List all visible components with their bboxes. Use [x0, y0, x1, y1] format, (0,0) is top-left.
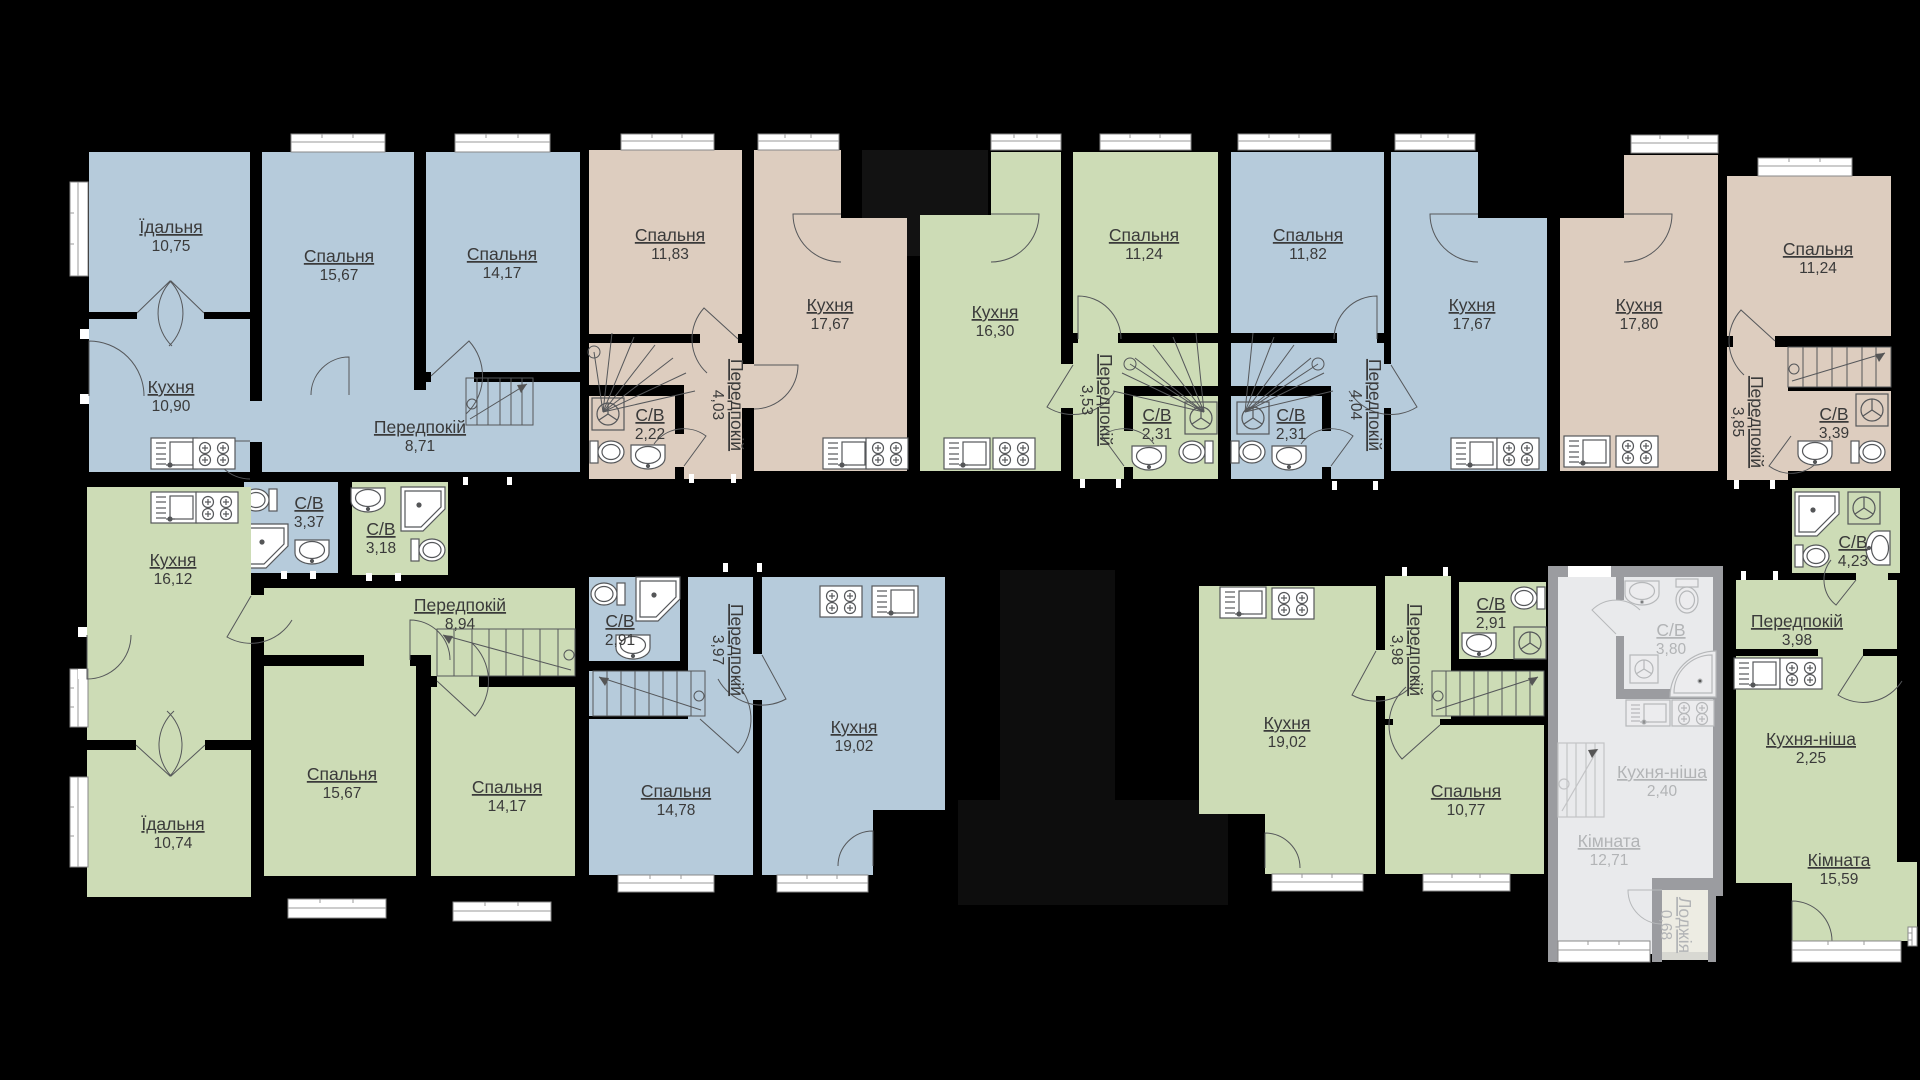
- svg-text:Спальня: Спальня: [1431, 781, 1501, 801]
- svg-text:Спальня: Спальня: [635, 225, 705, 245]
- svg-text:3,85: 3,85: [1729, 407, 1746, 437]
- svg-text:10,75: 10,75: [152, 238, 191, 255]
- svg-text:Передпокій: Передпокій: [414, 595, 506, 615]
- svg-text:14,17: 14,17: [483, 265, 522, 282]
- svg-text:Кухня: Кухня: [150, 550, 197, 570]
- svg-text:Спальня: Спальня: [307, 764, 377, 784]
- svg-text:Кімната: Кімната: [1578, 831, 1641, 851]
- svg-text:19,02: 19,02: [1268, 734, 1307, 751]
- svg-text:2,22: 2,22: [635, 426, 665, 443]
- svg-text:С/В: С/В: [294, 493, 323, 513]
- svg-text:8,71: 8,71: [405, 438, 435, 455]
- svg-text:10,90: 10,90: [152, 398, 191, 415]
- svg-text:16,12: 16,12: [154, 571, 193, 588]
- svg-text:Передпокій: Передпокій: [1365, 359, 1385, 451]
- svg-text:17,80: 17,80: [1620, 316, 1659, 333]
- svg-text:4,03: 4,03: [709, 390, 726, 420]
- svg-text:2,31: 2,31: [1142, 426, 1172, 443]
- svg-text:17,67: 17,67: [811, 316, 850, 333]
- svg-text:4,23: 4,23: [1838, 553, 1868, 570]
- svg-text:2,25: 2,25: [1796, 750, 1826, 767]
- svg-text:Їдальня: Їдальня: [139, 217, 202, 237]
- svg-text:Кухня-ніша: Кухня-ніша: [1766, 729, 1856, 749]
- svg-text:Передпокій: Передпокій: [1747, 376, 1767, 468]
- svg-text:0,68: 0,68: [1657, 910, 1674, 940]
- svg-text:С/В: С/В: [366, 519, 395, 539]
- svg-text:15,67: 15,67: [320, 267, 359, 284]
- svg-text:Спальня: Спальня: [304, 246, 374, 266]
- svg-text:11,24: 11,24: [1125, 246, 1163, 263]
- svg-text:Передпокій: Передпокій: [727, 604, 747, 696]
- svg-text:3,97: 3,97: [709, 635, 726, 665]
- svg-text:Передпокій: Передпокій: [1406, 604, 1426, 696]
- svg-text:С/В: С/В: [1656, 620, 1685, 640]
- svg-text:2,91: 2,91: [605, 632, 635, 649]
- svg-text:Спальня: Спальня: [641, 781, 711, 801]
- svg-text:14,17: 14,17: [488, 798, 527, 815]
- svg-text:Кухня: Кухня: [831, 717, 878, 737]
- svg-text:3,18: 3,18: [366, 540, 396, 557]
- svg-text:С/В: С/В: [1819, 404, 1848, 424]
- svg-text:С/В: С/В: [1276, 405, 1305, 425]
- svg-text:14,78: 14,78: [657, 802, 696, 819]
- svg-text:Кухня: Кухня: [1616, 295, 1663, 315]
- svg-text:Кухня: Кухня: [807, 295, 854, 315]
- svg-text:3,98: 3,98: [1388, 635, 1405, 665]
- svg-text:Спальня: Спальня: [1273, 225, 1343, 245]
- svg-text:3,39: 3,39: [1819, 425, 1849, 442]
- svg-text:Лоджія: Лоджія: [1675, 897, 1695, 953]
- svg-text:2,31: 2,31: [1276, 426, 1306, 443]
- svg-text:Їдальня: Їдальня: [141, 814, 204, 834]
- svg-text:12,71: 12,71: [1590, 852, 1629, 869]
- svg-text:Передпокій: Передпокій: [1096, 354, 1116, 446]
- svg-text:2,40: 2,40: [1647, 783, 1678, 800]
- svg-text:С/В: С/В: [1142, 405, 1171, 425]
- svg-text:11,83: 11,83: [651, 246, 689, 263]
- svg-text:Спальня: Спальня: [472, 777, 542, 797]
- svg-text:3,53: 3,53: [1078, 385, 1095, 415]
- svg-text:Кухня: Кухня: [972, 302, 1019, 322]
- svg-text:Кімната: Кімната: [1808, 850, 1871, 870]
- svg-text:16,30: 16,30: [976, 323, 1015, 340]
- svg-text:С/В: С/В: [635, 405, 664, 425]
- svg-text:3,80: 3,80: [1656, 641, 1687, 658]
- svg-text:17,67: 17,67: [1453, 316, 1492, 333]
- svg-text:Спальня: Спальня: [1783, 239, 1853, 259]
- svg-text:Кухня: Кухня: [148, 377, 195, 397]
- svg-text:10,74: 10,74: [154, 835, 193, 852]
- svg-text:Кухня: Кухня: [1264, 713, 1311, 733]
- svg-text:Передпокій: Передпокій: [374, 417, 466, 437]
- svg-text:2,91: 2,91: [1476, 615, 1506, 632]
- svg-text:11,24: 11,24: [1799, 260, 1837, 277]
- svg-text:Спальня: Спальня: [1109, 225, 1179, 245]
- svg-text:С/В: С/В: [605, 611, 634, 631]
- svg-text:10,77: 10,77: [1447, 802, 1486, 819]
- svg-text:8,94: 8,94: [445, 616, 476, 633]
- svg-text:С/В: С/В: [1838, 532, 1867, 552]
- svg-text:Кухня: Кухня: [1449, 295, 1496, 315]
- svg-text:Кухня-ніша: Кухня-ніша: [1617, 762, 1707, 782]
- svg-text:Спальня: Спальня: [467, 244, 537, 264]
- svg-text:11,82: 11,82: [1289, 246, 1327, 263]
- svg-text:С/В: С/В: [1476, 594, 1505, 614]
- svg-text:4,04: 4,04: [1347, 390, 1364, 421]
- svg-text:3,98: 3,98: [1782, 632, 1812, 649]
- svg-text:15,67: 15,67: [323, 785, 362, 802]
- svg-text:Передпокій: Передпокій: [727, 359, 747, 451]
- svg-text:3,37: 3,37: [294, 514, 324, 531]
- svg-text:19,02: 19,02: [835, 738, 874, 755]
- svg-text:15,59: 15,59: [1820, 871, 1859, 888]
- svg-text:Передпокій: Передпокій: [1751, 611, 1843, 631]
